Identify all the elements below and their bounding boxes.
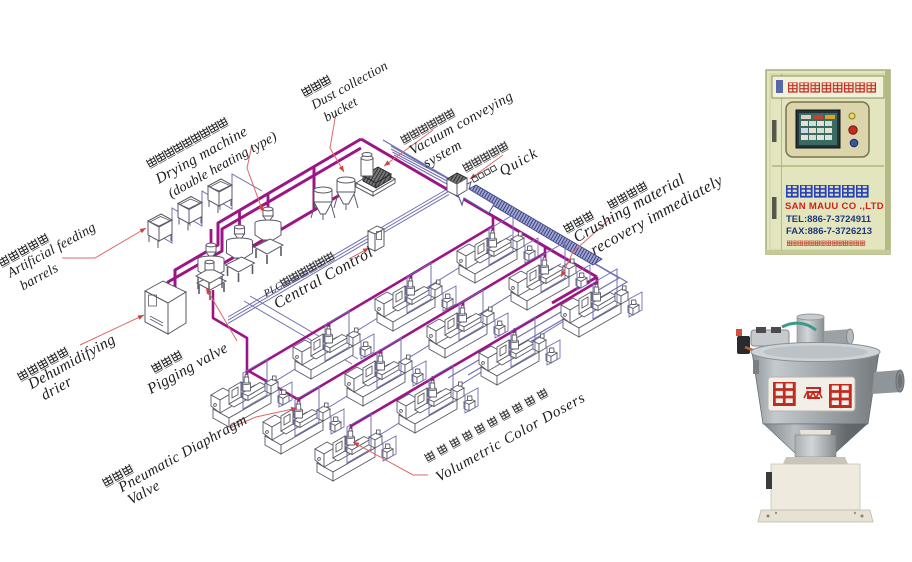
svg-text:Pneumatic Diaphragm: Pneumatic Diaphragm [115,412,250,497]
svg-text:TEL:886-7-3724911: TEL:886-7-3724911 [786,214,872,225]
svg-text:SAN MAUU CO .,LTD: SAN MAUU CO .,LTD [785,201,884,212]
svg-text:FAX:886-7-3726213: FAX:886-7-3726213 [786,226,872,237]
